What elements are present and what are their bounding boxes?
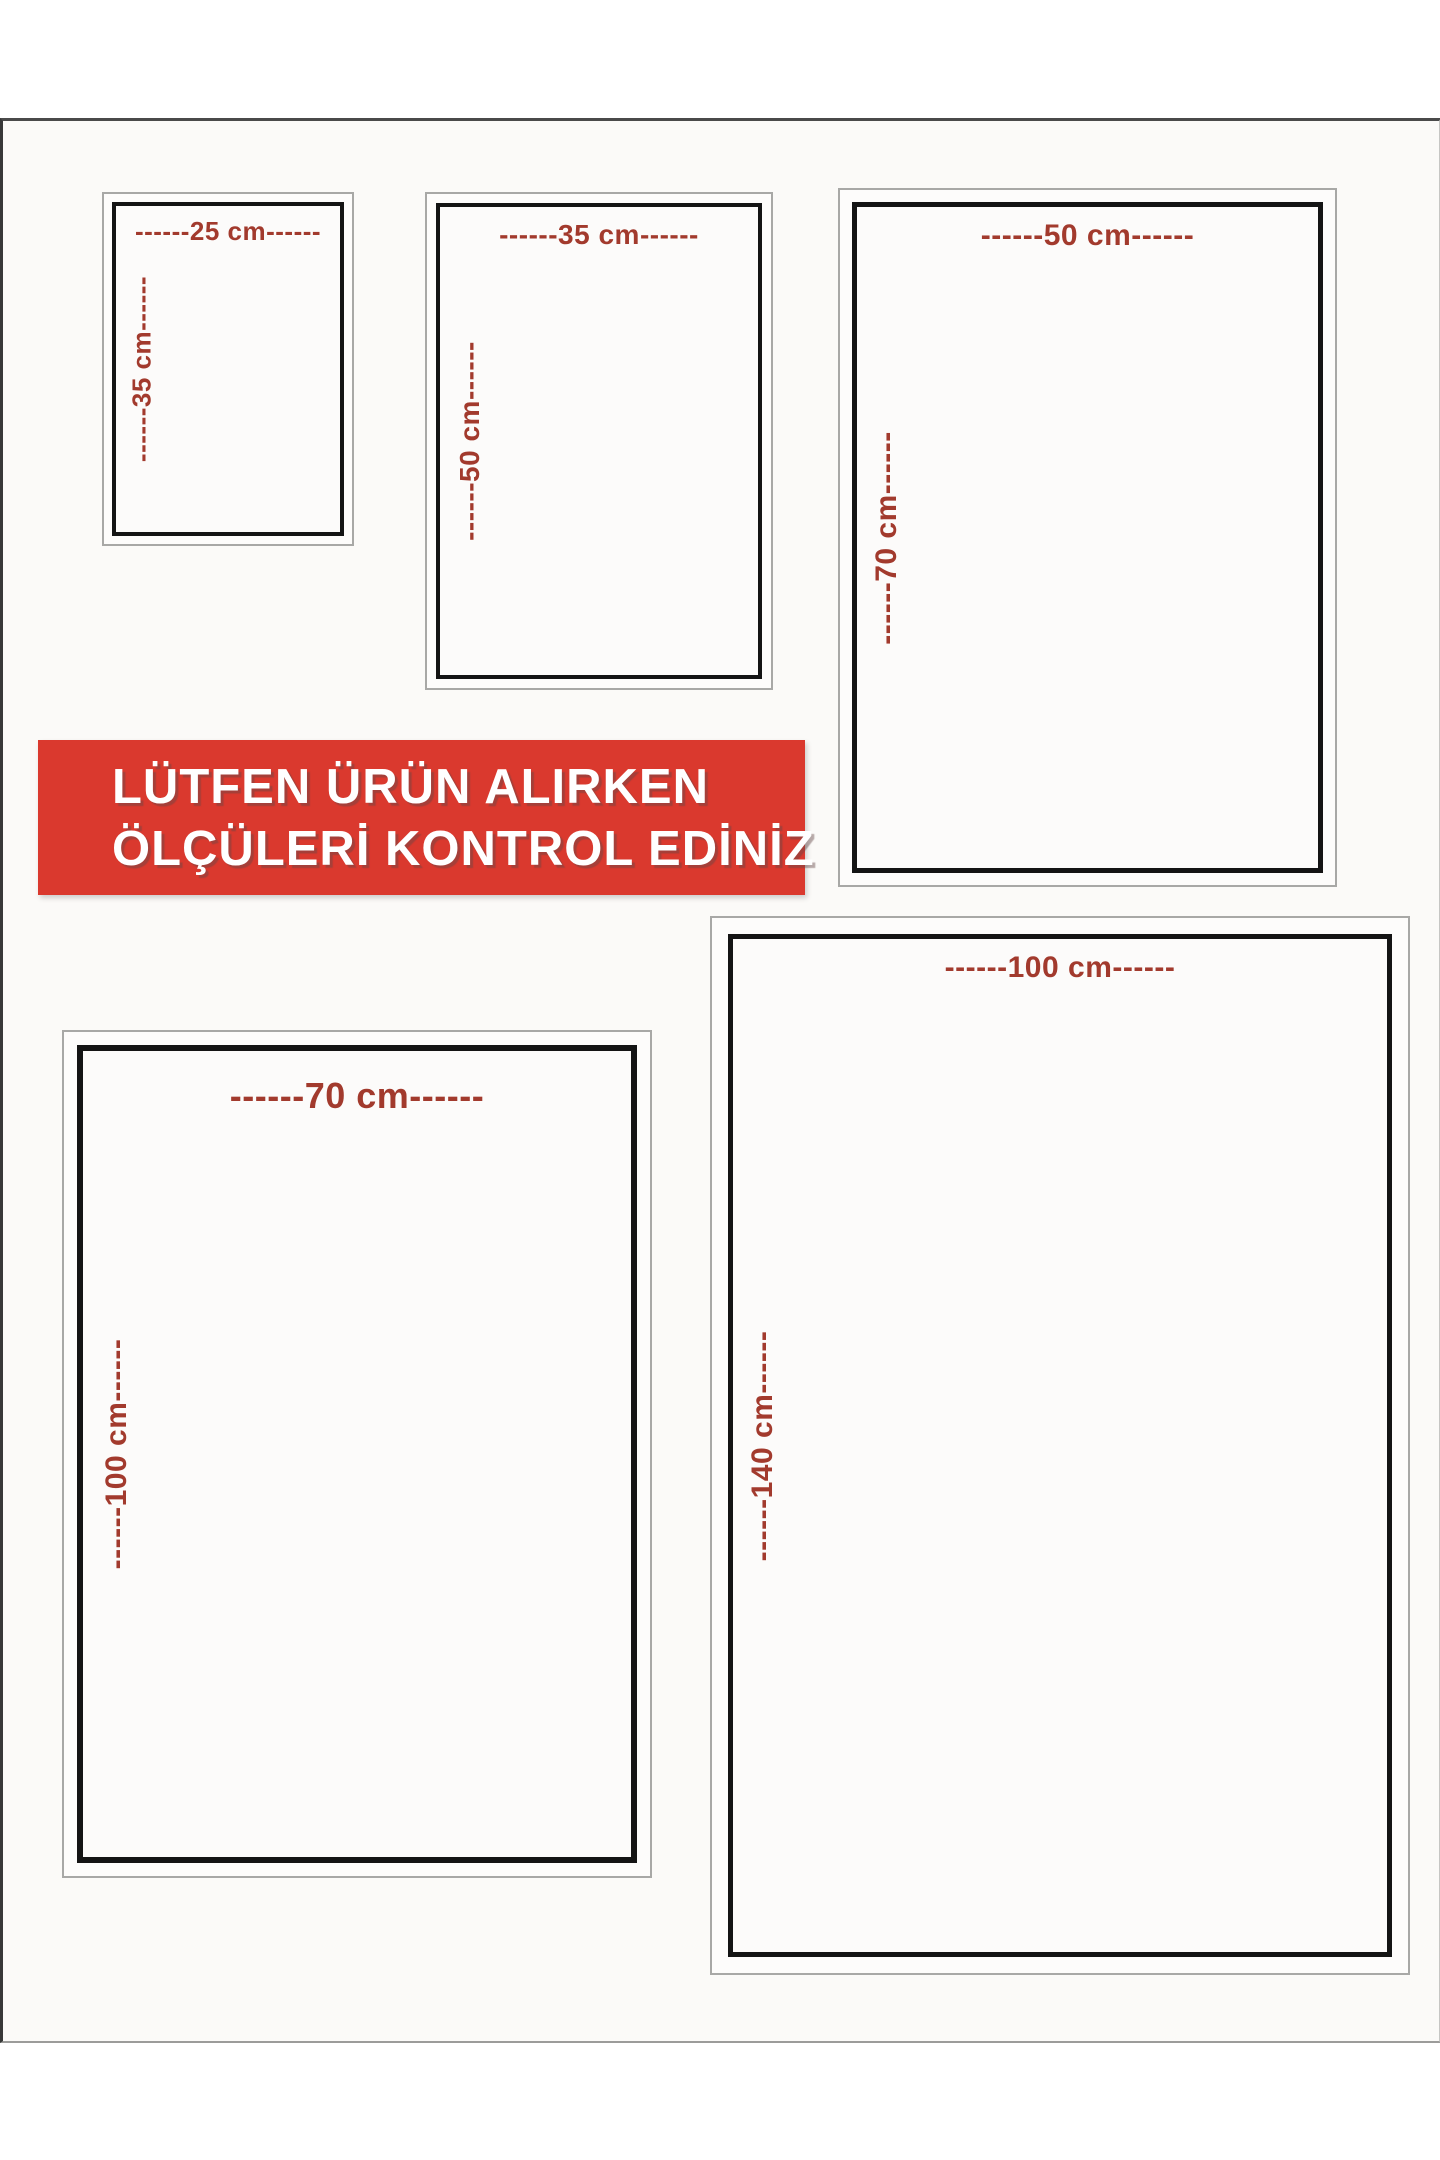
scanned-page-background: ------25 cm------ ------35 cm------ ----… <box>0 118 1440 2043</box>
height-dimension-label: ------140 cm------ <box>746 1330 780 1561</box>
height-dimension-label: ------100 cm------ <box>100 1339 134 1570</box>
width-dimension-label: ------35 cm------ <box>499 219 699 251</box>
width-dimension-label: ------100 cm------ <box>945 951 1176 985</box>
height-dimension-label: ------50 cm------ <box>454 341 486 541</box>
size-box-25x35: ------25 cm------ ------35 cm------ <box>102 192 354 546</box>
width-dimension-label: ------70 cm------ <box>230 1075 484 1117</box>
size-box-35x50: ------35 cm------ ------50 cm------ <box>425 192 773 690</box>
width-dimension-label: ------50 cm------ <box>981 219 1194 253</box>
size-box-50x70: ------50 cm------ ------70 cm------ <box>838 188 1337 887</box>
warning-banner-line2: ÖLÇÜLERİ KONTROL EDİNİZ <box>112 818 805 880</box>
size-box-100x140-frame: ------100 cm------ ------140 cm------ <box>728 934 1392 1957</box>
warning-banner-line1: LÜTFEN ÜRÜN ALIRKEN <box>112 756 805 818</box>
size-box-50x70-frame: ------50 cm------ ------70 cm------ <box>852 202 1323 873</box>
warning-banner: LÜTFEN ÜRÜN ALIRKEN ÖLÇÜLERİ KONTROL EDİ… <box>38 740 805 895</box>
size-box-35x50-frame: ------35 cm------ ------50 cm------ <box>436 203 762 679</box>
size-box-70x100: ------70 cm------ ------100 cm------ <box>62 1030 652 1878</box>
size-chart-page: { "banner": { "line1": "LÜTFEN ÜRÜN ALIR… <box>0 0 1440 2160</box>
height-dimension-label: ------70 cm------ <box>870 431 904 644</box>
size-box-70x100-frame: ------70 cm------ ------100 cm------ <box>77 1045 637 1863</box>
size-box-100x140: ------100 cm------ ------140 cm------ <box>710 916 1410 1975</box>
height-dimension-label: ------35 cm------ <box>127 276 158 462</box>
width-dimension-label: ------25 cm------ <box>135 216 321 247</box>
size-box-25x35-frame: ------25 cm------ ------35 cm------ <box>112 202 344 536</box>
